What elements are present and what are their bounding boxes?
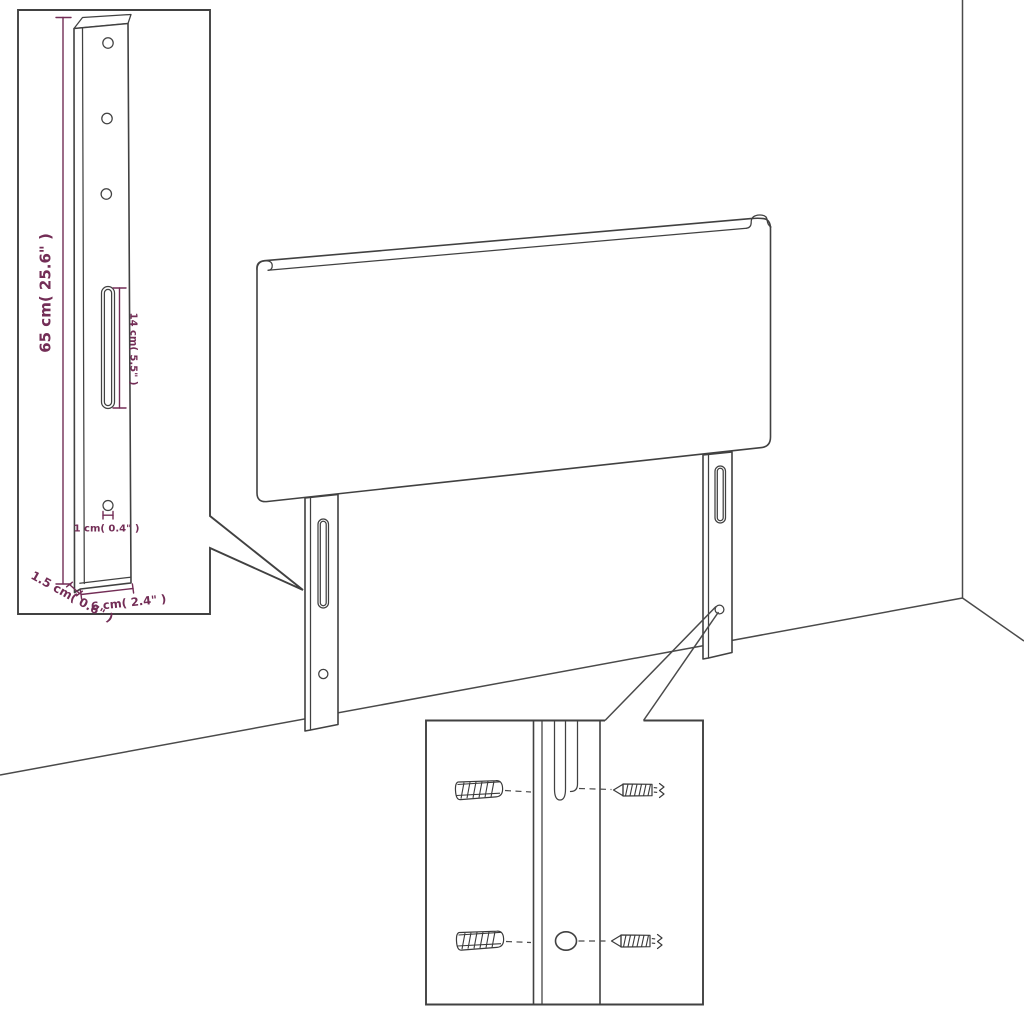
hole-diameter-label: 1 cm( 0.4" ) [74, 524, 140, 535]
slot-length-label: 14 cm( 5.5" ) [128, 313, 139, 386]
callout-line-2 [644, 612, 719, 721]
callout-line-1 [605, 607, 716, 721]
diagram-page: 65 cm( 25.6" ) 14 cm( 5.5" ) 1 cm( 0.4" … [0, 0, 1024, 1024]
inset-mounting-detail [426, 607, 719, 1005]
headboard-panel [257, 215, 771, 502]
floor-line-right [963, 598, 1024, 641]
headboard-left-leg [305, 495, 338, 732]
panel-outline [257, 218, 771, 501]
leg-height-label: 65 cm( 25.6" ) [37, 233, 55, 353]
diagram-canvas: 65 cm( 25.6" ) 14 cm( 5.5" ) 1 cm( 0.4" … [0, 0, 1024, 1024]
inset-mounting-box-fill [426, 721, 703, 1005]
